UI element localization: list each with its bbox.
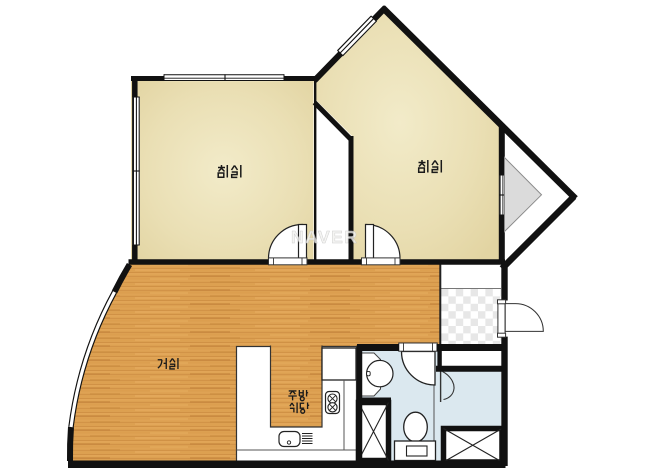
svg-text:NAVER: NAVER bbox=[291, 227, 358, 247]
